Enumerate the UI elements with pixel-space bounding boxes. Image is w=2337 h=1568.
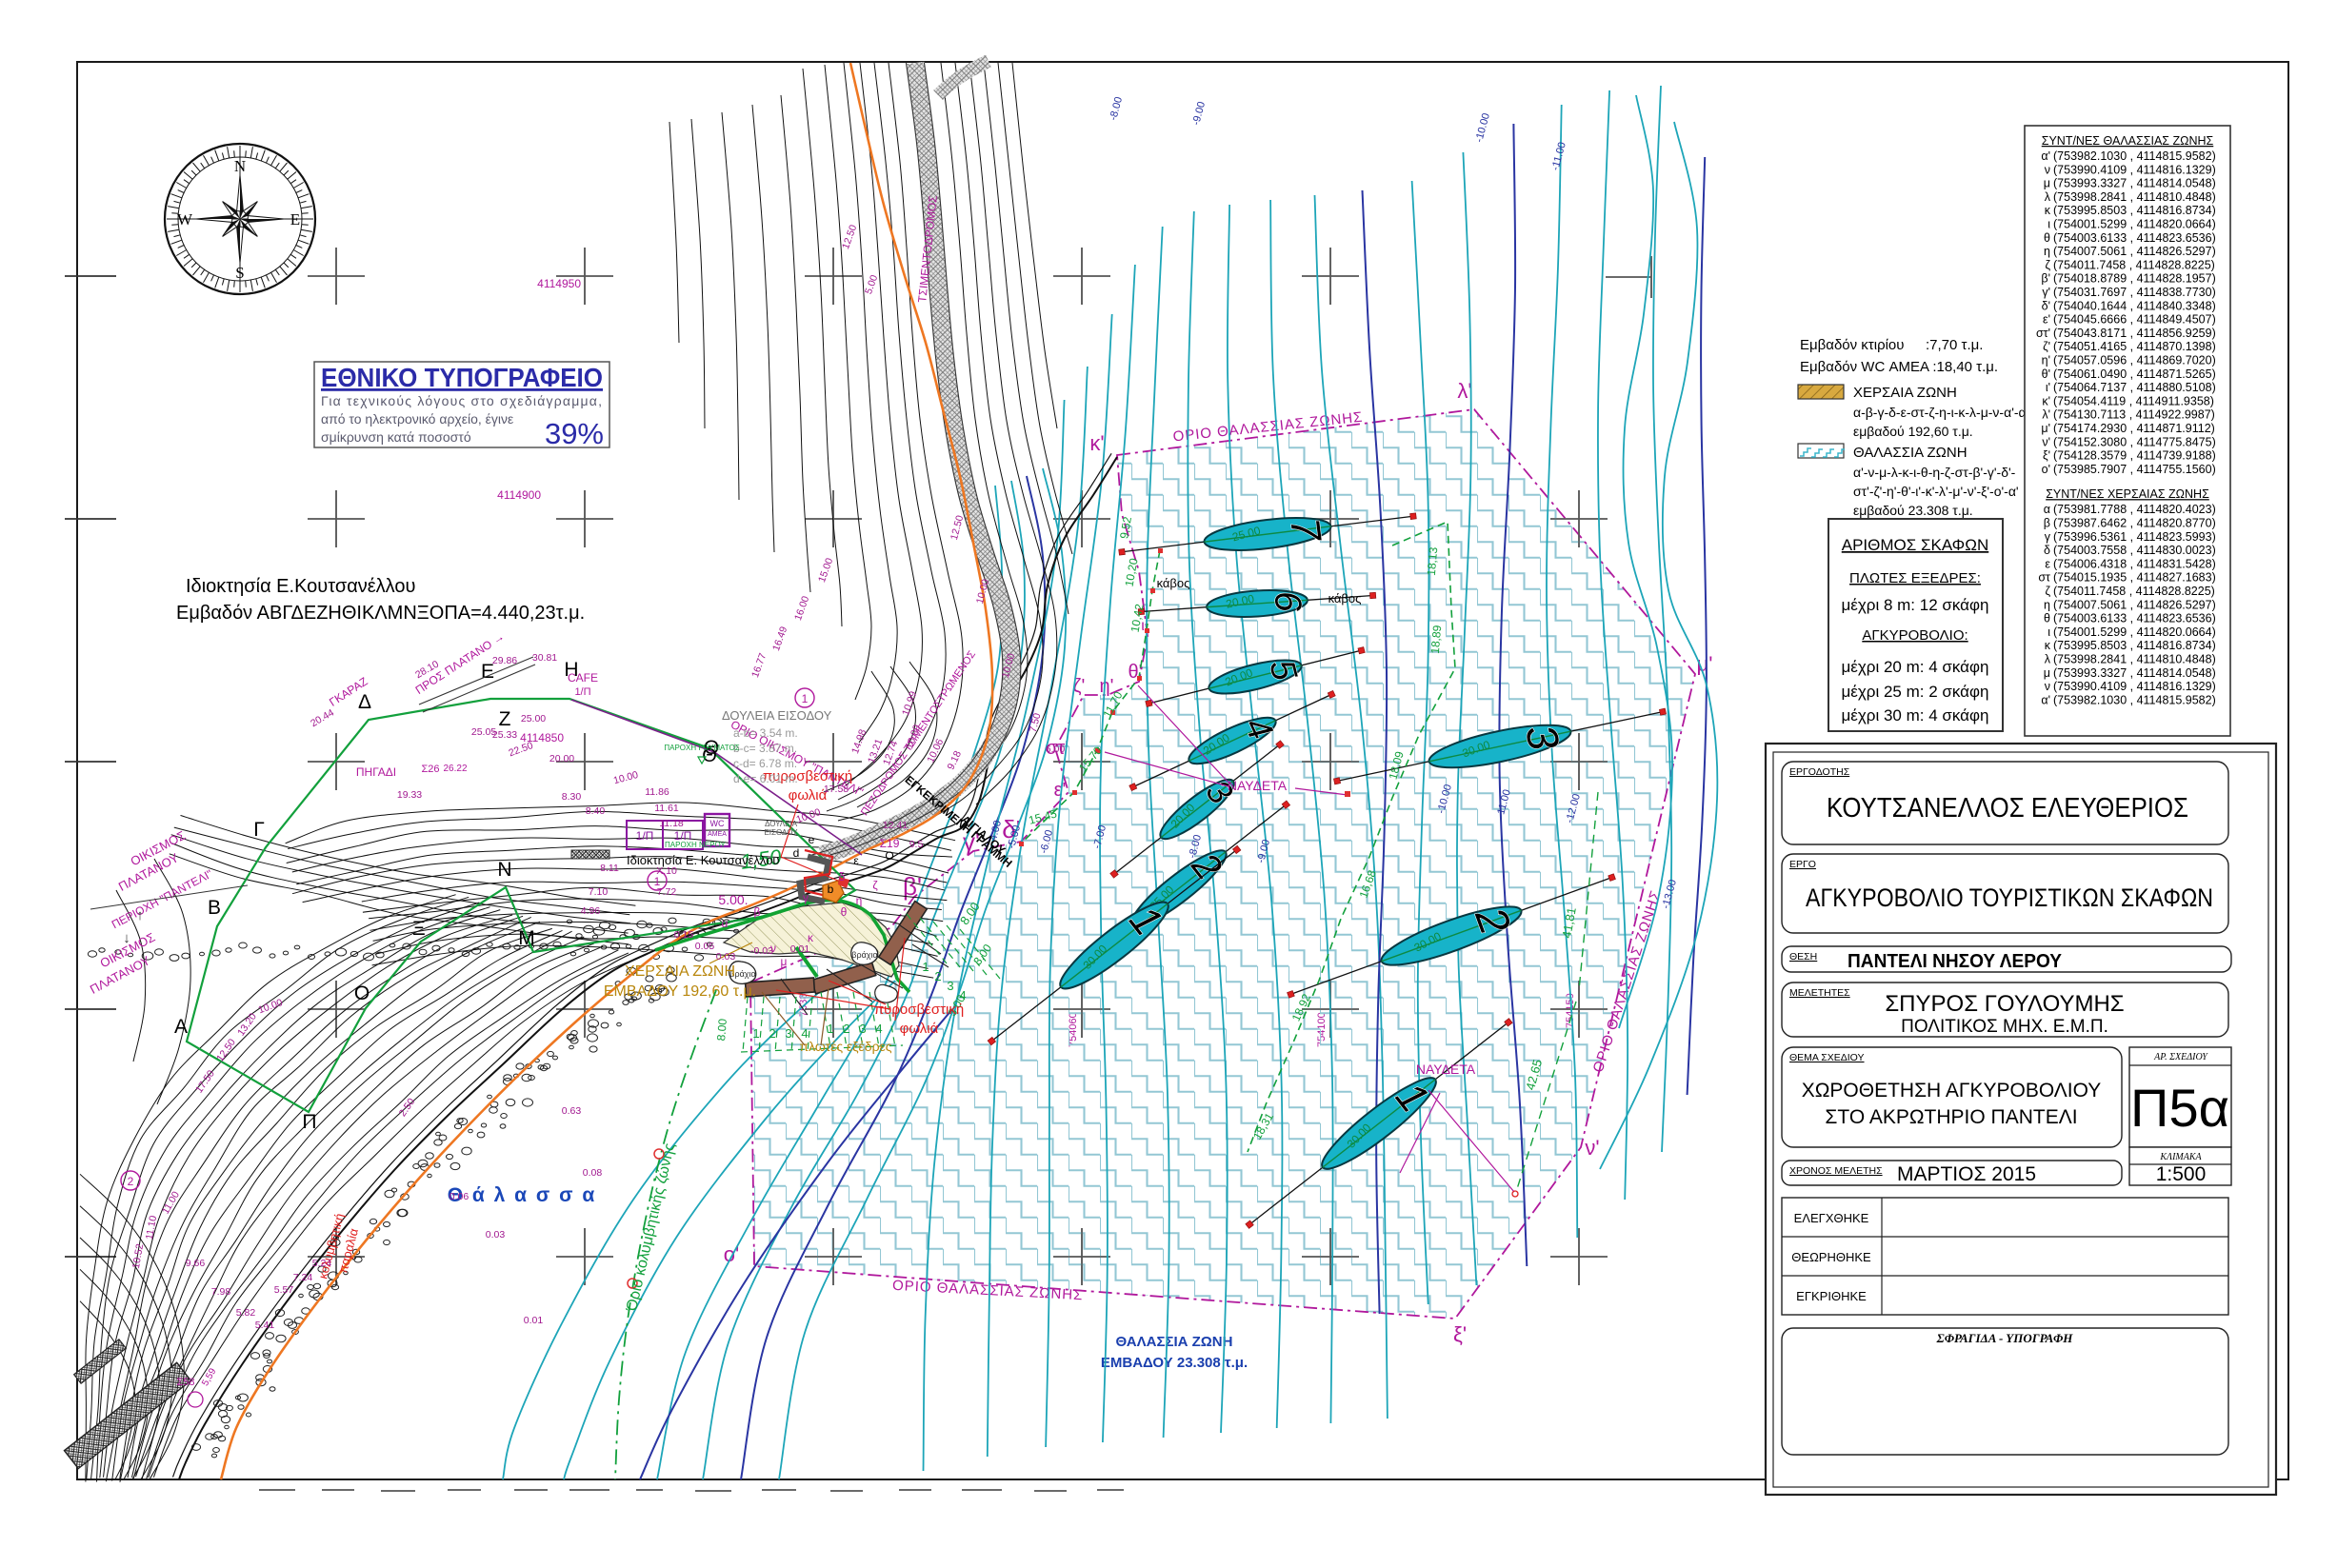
svg-text:b: b	[828, 883, 834, 896]
svg-text:7.24: 7.24	[293, 1272, 313, 1283]
svg-text:α: α	[2044, 503, 2050, 516]
svg-text:e: e	[809, 833, 815, 846]
svg-text:ΠΗΓΑΔΙ: ΠΗΓΑΔΙ	[356, 765, 396, 779]
svg-text:μ': μ'	[2041, 422, 2050, 435]
svg-text:ν': ν'	[1585, 1136, 1599, 1160]
svg-text:E: E	[290, 210, 300, 228]
svg-text:ξ': ξ'	[2043, 449, 2050, 463]
svg-text:8.40: 8.40	[586, 805, 606, 817]
svg-text:ι: ι	[2047, 625, 2050, 639]
svg-text:39%: 39%	[545, 417, 604, 450]
svg-text:c-d= 6.78 m.: c-d= 6.78 m.	[733, 757, 797, 770]
svg-text:β': β'	[2041, 272, 2050, 286]
svg-text:ΔΟΥΛΕΙΑ: ΔΟΥΛΕΙΑ	[765, 820, 798, 828]
svg-text:μ: μ	[781, 955, 788, 968]
svg-text:Εμβαδόν ΑΒΓΔΕΖΗΘΙΚΛΜΝΞΟΠΑ=4.44: Εμβαδόν ΑΒΓΔΕΖΗΘΙΚΛΜΝΞΟΠΑ=4.440,23τ.μ.	[176, 603, 585, 624]
svg-text:ΕΘΝΙΚΟ ΤΥΠΟΓΡΑΦΕΙΟ: ΕΘΝΙΚΟ ΤΥΠΟΓΡΑΦΕΙΟ	[321, 363, 603, 392]
svg-text:ΧΡΟΝΟΣ ΜΕΛΕΤΗΣ: ΧΡΟΝΟΣ ΜΕΛΕΤΗΣ	[1789, 1165, 1883, 1177]
svg-text:δ: δ	[2044, 544, 2050, 557]
svg-text:8.11: 8.11	[600, 863, 619, 874]
svg-text:ν': ν'	[2042, 435, 2050, 448]
svg-text:γ: γ	[803, 891, 809, 904]
svg-text:0.05: 0.05	[695, 941, 715, 952]
svg-text:ΧΕΡΣΑΙΑ ΖΩΝΗ: ΧΕΡΣΑΙΑ ΖΩΝΗ	[1853, 385, 1957, 401]
svg-text:(754128.3579 , 4114739.9188): (754128.3579 , 4114739.9188)	[2053, 449, 2216, 463]
svg-text:(753995.8503 , 4114816.8734): (753995.8503 , 4114816.8734)	[2053, 639, 2216, 652]
svg-text:30.81: 30.81	[532, 652, 557, 664]
svg-text:γ: γ	[2045, 530, 2051, 544]
svg-text:ι': ι'	[2046, 381, 2050, 394]
svg-text::7,70 τ.μ.: :7,70 τ.μ.	[1926, 337, 1983, 353]
svg-text:ΕΛΕΓΧΘΗΚΕ: ΕΛΕΓΧΘΗΚΕ	[1794, 1211, 1869, 1225]
svg-text:ΜΕΛΕΤΗΤΕΣ: ΜΕΛΕΤΗΤΕΣ	[1789, 987, 1850, 999]
svg-text:1: 1	[922, 960, 929, 974]
svg-text:26.22: 26.22	[443, 764, 467, 774]
svg-text:κ: κ	[808, 931, 814, 944]
svg-text:ΔΟΥΛΕΙΑ ΕΙΣΟΔΟΥ: ΔΟΥΛΕΙΑ ΕΙΣΟΔΟΥ	[722, 708, 832, 723]
svg-text:ΠΑΝΤΕΛΙ ΝΗΣΟΥ ΛΕΡΟΥ: ΠΑΝΤΕΛΙ ΝΗΣΟΥ ΛΕΡΟΥ	[1848, 951, 2063, 972]
svg-text:ΘΑΛΑΣΣΙΑ ΖΩΝΗ: ΘΑΛΑΣΣΙΑ ΖΩΝΗ	[1853, 445, 1967, 461]
svg-text:1: 1	[752, 1026, 759, 1041]
svg-text:12.41: 12.41	[883, 820, 908, 831]
svg-text:(754011.7458 , 4114828.8225): (754011.7458 , 4114828.8225)	[2053, 585, 2215, 598]
svg-text:φωλιά: φωλιά	[900, 1021, 939, 1037]
svg-text:Σ26: Σ26	[421, 764, 439, 775]
svg-text:Ζ: Ζ	[499, 708, 511, 730]
svg-text:25.00: 25.00	[521, 713, 546, 724]
svg-text:0.06: 0.06	[449, 1191, 469, 1202]
svg-text:ι: ι	[2047, 218, 2050, 231]
svg-text:θ: θ	[2044, 231, 2050, 245]
svg-text:μ: μ	[2044, 177, 2050, 190]
svg-text:(753993.3327 , 4114814.0548): (753993.3327 , 4114814.0548)	[2053, 177, 2216, 190]
svg-text:γ': γ'	[2042, 286, 2050, 299]
svg-text:μέχρι 30 m: 4 σκάφη: μέχρι 30 m: 4 σκάφη	[1842, 706, 1989, 724]
svg-text:6.00: 6.00	[1046, 744, 1066, 755]
svg-text:2: 2	[843, 1022, 849, 1036]
svg-text:εμβαδού 23.308 τ.μ.: εμβαδού 23.308 τ.μ.	[1853, 503, 1973, 518]
svg-text:βράχια: βράχια	[851, 950, 877, 960]
svg-text:(754057.0596 , 4114869.7020): (754057.0596 , 4114869.7020)	[2053, 354, 2216, 367]
svg-text:(753998.2841 , 4114810.4848): (753998.2841 , 4114810.4848)	[2053, 653, 2216, 666]
svg-text:Εμβαδόν WC ΑΜΕΑ :18,40 τ.μ.: Εμβαδόν WC ΑΜΕΑ :18,40 τ.μ.	[1800, 359, 1998, 375]
svg-text:CAFE: CAFE	[568, 671, 598, 685]
svg-text:λ: λ	[2045, 190, 2051, 204]
svg-text:μέχρι 20 m: 4 σκάφη: μέχρι 20 m: 4 σκάφη	[1842, 658, 1989, 676]
svg-text:ΣΦΡΑΓΙΔΑ - ΥΠΟΓΡΑΦΗ: ΣΦΡΑΓΙΔΑ - ΥΠΟΓΡΑΦΗ	[1936, 1331, 2074, 1345]
svg-text:μέχρι 25 m: 2 σκάφη: μέχρι 25 m: 2 σκάφη	[1842, 683, 1989, 701]
svg-text:κ': κ'	[2042, 394, 2050, 407]
svg-text:(754001.5299 , 4114820.0664): (754001.5299 , 4114820.0664)	[2053, 218, 2216, 231]
svg-text:ΣΤΟ ΑΚΡΩΤΗΡΙΟ ΠΑΝΤΕΛΙ: ΣΤΟ ΑΚΡΩΤΗΡΙΟ ΠΑΝΤΕΛΙ	[1825, 1106, 2077, 1128]
svg-text:ΑΡΙΘΜΟΣ ΣΚΑΦΩΝ: ΑΡΙΘΜΟΣ ΣΚΑΦΩΝ	[1842, 536, 1989, 554]
svg-text:στ'-ζ'-η'-θ'-ι'-κ'-λ'-μ'-ν'-ξ': στ'-ζ'-η'-θ'-ι'-κ'-λ'-μ'-ν'-ξ'-ο'-α'	[1853, 484, 2019, 499]
svg-text:Α: Α	[174, 1016, 188, 1038]
svg-text:(754045.6666 , 4114849.4507): (754045.6666 , 4114849.4507)	[2053, 313, 2216, 327]
svg-text:b-c= 3.87 m.: b-c= 3.87 m.	[733, 742, 797, 755]
svg-text:ΕΡΓΟΔΟΤΗΣ: ΕΡΓΟΔΟΤΗΣ	[1789, 766, 1850, 778]
svg-text:α: α	[722, 917, 729, 930]
svg-text:0.15: 0.15	[674, 929, 694, 941]
svg-text:-0.03: -0.03	[750, 945, 773, 957]
svg-text:λ': λ'	[1457, 379, 1471, 403]
svg-text:θ': θ'	[2042, 367, 2050, 381]
svg-text:ο': ο'	[2042, 463, 2050, 476]
svg-text:στ: στ	[2038, 571, 2050, 585]
svg-text:5.00.: 5.00.	[718, 892, 748, 907]
svg-text:ΣΥΝΤ/ΝΕΣ ΘΑΛΑΣΣΙΑΣ ΖΩΝΗΣ: ΣΥΝΤ/ΝΕΣ ΘΑΛΑΣΣΙΑΣ ΖΩΝΗΣ	[2042, 134, 2214, 148]
svg-text:(753995.8503 , 4114816.8734): (753995.8503 , 4114816.8734)	[2053, 204, 2216, 217]
svg-text:ΜΑΡΤΙΟΣ 2015: ΜΑΡΤΙΟΣ 2015	[1897, 1163, 2036, 1185]
svg-text:Δ: Δ	[358, 691, 371, 713]
svg-text:(753990.4109 , 4114816.1329): (753990.4109 , 4114816.1329)	[2053, 680, 2216, 693]
svg-text:ΝΑΥΔΕΤΑ: ΝΑΥΔΕΤΑ	[1416, 1062, 1476, 1077]
svg-text:(753993.3327 , 4114814.0548): (753993.3327 , 4114814.0548)	[2053, 666, 2216, 680]
svg-text:29.86: 29.86	[492, 655, 517, 666]
svg-text:2: 2	[769, 1026, 775, 1041]
svg-text:4114950: 4114950	[537, 277, 581, 290]
svg-text:Θ ά λ α σ σ α: Θ ά λ α σ σ α	[448, 1184, 596, 1206]
svg-text:ΚΟΥΤΣΑΝΕΛΛΟΣ ΕΛΕΥΘΕΡΙΟΣ: ΚΟΥΤΣΑΝΕΛΛΟΣ ΕΛΕΥΘΕΡΙΟΣ	[1827, 793, 2188, 824]
svg-text:θ: θ	[841, 905, 848, 919]
svg-text:(754040.1644 , 4114840.3348): (754040.1644 , 4114840.3348)	[2053, 299, 2216, 312]
svg-text:λ': λ'	[2042, 408, 2050, 422]
svg-text:α': α'	[2041, 149, 2050, 163]
svg-text:8.30: 8.30	[562, 791, 582, 803]
svg-text:η: η	[2044, 245, 2050, 258]
svg-text:ΝΑΥΔΕΤΑ: ΝΑΥΔΕΤΑ	[1228, 778, 1288, 793]
svg-text:(754130.7113 , 4114922.9987): (754130.7113 , 4114922.9987)	[2053, 408, 2215, 422]
svg-text:(753982.1030 , 4114815.9582): (753982.1030 , 4114815.9582)	[2053, 149, 2216, 163]
svg-text:(754018.8789 , 4114828.1957): (754018.8789 , 4114828.1957)	[2053, 272, 2216, 286]
svg-text:(754011.7458 , 4114828.8225): (754011.7458 , 4114828.8225)	[2053, 258, 2215, 271]
svg-text:ΣΥΝΤ/ΝΕΣ ΧΕΡΣΑΙΑΣ ΖΩΝΗΣ: ΣΥΝΤ/ΝΕΣ ΧΕΡΣΑΙΑΣ ΖΩΝΗΣ	[2046, 487, 2209, 501]
svg-text:β: β	[754, 905, 761, 919]
svg-text:4114900: 4114900	[497, 488, 541, 502]
svg-text:(754152.3080 , 4114775.8475): (754152.3080 , 4114775.8475)	[2053, 435, 2216, 448]
svg-text:Ιδιοκτησία Ε. Κουτσανέλλου: Ιδιοκτησία Ε. Κουτσανέλλου	[627, 853, 780, 867]
svg-text:(754006.4318 , 4114831.5428): (754006.4318 , 4114831.5428)	[2053, 557, 2216, 570]
svg-text:(754003.6133 , 4114823.6536): (754003.6133 , 4114823.6536)	[2053, 612, 2216, 625]
svg-text:(754174.2930 , 4114871.9112): (754174.2930 , 4114871.9112)	[2053, 422, 2215, 435]
svg-text:d-e= 6.01 m.: d-e= 6.01 m.	[733, 772, 798, 785]
svg-text:S: S	[235, 264, 244, 282]
svg-text:(753987.6462 , 4114820.8770): (753987.6462 , 4114820.8770)	[2053, 517, 2216, 530]
svg-text:20.00: 20.00	[549, 753, 574, 764]
svg-text:από το ηλεκτρονικό αρχείο, έγι: από το ηλεκτρονικό αρχείο, έγινε	[321, 411, 513, 427]
svg-text:3: 3	[947, 979, 953, 993]
svg-text:ΕΡΓΟ: ΕΡΓΟ	[1789, 859, 1816, 870]
svg-text:η: η	[2044, 598, 2050, 611]
svg-text:α'-ν-μ-λ-κ-ι-θ-η-ζ-στ-β'-γ'-δ': α'-ν-μ-λ-κ-ι-θ-η-ζ-στ-β'-γ'-δ'-	[1853, 465, 2016, 480]
svg-text:(754031.7697 , 4114838.7730): (754031.7697 , 4114838.7730)	[2053, 286, 2216, 299]
svg-text:9.5: 9.5	[909, 839, 924, 850]
svg-text:ζ: ζ	[872, 879, 878, 892]
svg-text:ε': ε'	[2043, 313, 2050, 327]
svg-text:X.10: X.10	[656, 865, 677, 877]
svg-text:κ: κ	[2045, 639, 2051, 652]
svg-text:πυροσβεστική: πυροσβεστική	[874, 1002, 964, 1018]
svg-text:Ν: Ν	[497, 859, 511, 881]
svg-text:α-β-γ-δ-ε-στ-ζ-η-ι-κ-λ-μ-ν-α'-: α-β-γ-δ-ε-στ-ζ-η-ι-κ-λ-μ-ν-α'-α	[1853, 405, 2027, 420]
svg-text:11.86: 11.86	[645, 786, 669, 798]
svg-text:Ο: Ο	[354, 982, 370, 1004]
svg-text:Γ: Γ	[253, 819, 265, 841]
svg-text:ΧΩΡΟΘΕΤΗΣΗ ΑΓΚΥΡΟΒΟΛΙΟΥ: ΧΩΡΟΘΕΤΗΣΗ ΑΓΚΥΡΟΒΟΛΙΟΥ	[1802, 1080, 2102, 1102]
svg-text:β: β	[2044, 517, 2050, 530]
svg-text:ε: ε	[2045, 557, 2050, 570]
svg-text:ν: ν	[2045, 163, 2050, 176]
svg-text:ΣΠΥΡΟΣ ΓΟΥΛΟΥΜΗΣ: ΣΠΥΡΟΣ ΓΟΥΛΟΥΜΗΣ	[1885, 991, 2124, 1017]
svg-text:7.72: 7.72	[657, 886, 677, 898]
svg-text:Π: Π	[302, 1111, 316, 1133]
svg-text:στ': στ'	[2036, 327, 2050, 340]
svg-text:Π5α: Π5α	[2130, 1078, 2229, 1138]
svg-text:0.01: 0.01	[790, 943, 810, 955]
svg-text:(754001.5299 , 4114820.0664): (754001.5299 , 4114820.0664)	[2053, 625, 2216, 639]
svg-text:πλωτές εξέδρες: πλωτές εξέδρες	[799, 1039, 891, 1054]
svg-text:Ο: Ο	[885, 849, 893, 863]
svg-text:11.18: 11.18	[659, 818, 684, 829]
svg-text:(754007.5061 , 4114826.5297): (754007.5061 , 4114826.5297)	[2053, 245, 2216, 258]
svg-text:0.01: 0.01	[524, 1315, 544, 1326]
svg-text:ΠΑΡΟΧΗ ΝΕΡΟΥ: ΠΑΡΟΧΗ ΝΕΡΟΥ	[665, 841, 726, 849]
svg-text:5.24: 5.24	[312, 1258, 332, 1269]
svg-text:(753981.7788 , 4114820.4023): (753981.7788 , 4114820.4023)	[2053, 503, 2216, 516]
svg-text:4: 4	[875, 1022, 882, 1036]
svg-text:7.10: 7.10	[589, 886, 609, 898]
svg-text:(753982.1030 , 4114815.9582): (753982.1030 , 4114815.9582)	[2053, 693, 2216, 706]
svg-text:0.63: 0.63	[562, 1105, 582, 1117]
svg-text:ΕΙΣΟΔΟΥ: ΕΙΣΟΔΟΥ	[764, 828, 798, 837]
svg-text:1:500: 1:500	[2156, 1163, 2207, 1185]
svg-text:0.03: 0.03	[486, 1229, 506, 1241]
svg-text:5.82: 5.82	[236, 1307, 256, 1319]
svg-text:Σ19: Σ19	[880, 837, 900, 850]
svg-text:6: 6	[1267, 589, 1308, 613]
svg-text:ΕΓΚΡΙΘΗΚΕ: ΕΓΚΡΙΘΗΚΕ	[1796, 1289, 1867, 1303]
svg-text:ΘΕΣΗ: ΘΕΣΗ	[1789, 951, 1817, 963]
svg-text:ΑΓΚΥΡΟΒΟΛΙΟ:: ΑΓΚΥΡΟΒΟΛΙΟ:	[1862, 627, 1967, 644]
svg-text:ΠΟΛΙΤΙΚΟΣ ΜΗΧ. Ε.Μ.Π.: ΠΟΛΙΤΙΚΟΣ ΜΗΧ. Ε.Μ.Π.	[1901, 1017, 2108, 1037]
svg-text:1/Π: 1/Π	[574, 686, 590, 698]
svg-text:N: N	[234, 157, 246, 175]
svg-text:ΘΕΜΑ ΣΧΕΔΙΟΥ: ΘΕΜΑ ΣΧΕΔΙΟΥ	[1789, 1052, 1865, 1063]
svg-text:(754061.0490 , 4114871.5265): (754061.0490 , 4114871.5265)	[2053, 367, 2216, 381]
svg-text:d: d	[793, 846, 800, 860]
svg-text:δ: δ	[839, 870, 846, 883]
svg-text:ΧΕΡΣΑΙΑ ΖΩΝΗ: ΧΕΡΣΑΙΑ ΖΩΝΗ	[625, 963, 735, 980]
svg-text:φωλιά: φωλιά	[789, 787, 828, 804]
svg-text:5.57: 5.57	[274, 1284, 294, 1296]
svg-text:σμίκρυνση κατά ποσοστό: σμίκρυνση κατά ποσοστό	[321, 429, 471, 445]
svg-text:↓: ↓	[123, 930, 130, 946]
svg-text:Εμβαδόν κτιρίου: Εμβαδόν κτιρίου	[1800, 337, 1904, 353]
svg-text:8.00: 8.00	[714, 1018, 729, 1042]
svg-text:ΕΜΒΑΔΟΥ 23.308 τ.μ.: ΕΜΒΑΔΟΥ 23.308 τ.μ.	[1101, 1355, 1248, 1371]
svg-text:ΘΕΩΡΗΘΗΚΕ: ΘΕΩΡΗΘΗΚΕ	[1791, 1250, 1871, 1264]
svg-text:α': α'	[2041, 693, 2050, 706]
svg-text:19.33: 19.33	[397, 789, 422, 801]
svg-text:ΠΛΩΤΕΣ ΕΞΕΔΡΕΣ:: ΠΛΩΤΕΣ ΕΞΕΔΡΕΣ:	[1849, 570, 1981, 586]
svg-text:9.66: 9.66	[186, 1258, 206, 1269]
svg-text:ζ: ζ	[2045, 258, 2050, 271]
svg-text:κ': κ'	[1089, 431, 1104, 455]
svg-text:ΑΡ. ΣΧΕΔΙΟΥ: ΑΡ. ΣΧΕΔΙΟΥ	[2153, 1052, 2208, 1062]
svg-text:ΠΑΡΟΧΗ ΡΕΥΜΑΤΟΣ: ΠΑΡΟΧΗ ΡΕΥΜΑΤΟΣ	[664, 744, 739, 752]
svg-text:1: 1	[802, 692, 809, 705]
svg-text:18,13: 18,13	[1425, 546, 1441, 576]
svg-text:ζ': ζ'	[2043, 340, 2050, 353]
svg-text:ΕΜΒΑΔΟΥ 192,60 τ.μ.: ΕΜΒΑΔΟΥ 192,60 τ.μ.	[604, 983, 756, 1000]
svg-text:μ: μ	[2044, 666, 2050, 680]
svg-text:ε: ε	[853, 854, 859, 867]
svg-text:a-b= 3.54 m.: a-b= 3.54 m.	[733, 726, 798, 740]
svg-text:Σ58: Σ58	[176, 1377, 194, 1388]
svg-text:0.08: 0.08	[583, 1167, 603, 1179]
svg-text:WC: WC	[710, 819, 725, 828]
svg-text:Β: Β	[208, 897, 221, 919]
svg-text:11.61: 11.61	[654, 803, 679, 814]
svg-text:ΘΑΛΑΣΣΙΑ ΖΩΝΗ: ΘΑΛΑΣΣΙΑ ΖΩΝΗ	[1116, 1334, 1233, 1350]
svg-text:Για τεχνικούς λόγους στο σχεδι: Για τεχνικούς λόγους στο σχεδιάγραμμα,	[321, 393, 602, 408]
svg-text:↑: ↑	[136, 907, 144, 923]
svg-text:μέχρι 8 m: 12 σκάφη: μέχρι 8 m: 12 σκάφη	[1842, 596, 1989, 614]
svg-text:3: 3	[859, 1022, 866, 1036]
svg-text:18,89: 18,89	[1428, 625, 1445, 654]
svg-text:ΚΛΙΜΑΚΑ: ΚΛΙΜΑΚΑ	[2159, 1152, 2202, 1162]
svg-text:(754064.7137 , 4114880.5108): (754064.7137 , 4114880.5108)	[2053, 381, 2216, 394]
svg-text:4.96: 4.96	[581, 905, 601, 917]
svg-text:δ': δ'	[2042, 299, 2050, 312]
svg-text:17.58: 17.58	[824, 784, 849, 795]
svg-text:Ιδιοκτησία Ε.Κουτσανέλλου: Ιδιοκτησία Ε.Κουτσανέλλου	[186, 576, 415, 597]
svg-text:Ξ: Ξ	[412, 918, 426, 940]
svg-text:1/Π: 1/Π	[636, 829, 654, 843]
svg-text:ζ: ζ	[2045, 585, 2050, 598]
svg-text:λ: λ	[2045, 653, 2051, 666]
svg-text:ν: ν	[2045, 680, 2050, 693]
svg-text:1: 1	[827, 1022, 833, 1036]
svg-text:(753998.2841 , 4114810.4848): (753998.2841 , 4114810.4848)	[2053, 190, 2216, 204]
svg-text:7.98: 7.98	[211, 1286, 231, 1298]
svg-text:κάβος: κάβος	[1328, 591, 1362, 605]
svg-text:κ: κ	[2045, 204, 2051, 217]
svg-text:θ: θ	[2044, 612, 2050, 625]
svg-text:(754043.8171 , 4114856.9259): (754043.8171 , 4114856.9259)	[2053, 327, 2216, 340]
svg-text:(754007.5061 , 4114826.5297): (754007.5061 , 4114826.5297)	[2053, 598, 2216, 611]
svg-text:(753990.4109 , 4114816.1329): (753990.4109 , 4114816.1329)	[2053, 163, 2216, 176]
svg-text:η: η	[856, 894, 863, 907]
svg-text:(754054.4119 , 4114911.9358): (754054.4119 , 4114911.9358)	[2053, 394, 2214, 407]
svg-text:Μ: Μ	[518, 927, 535, 949]
svg-text:εμβαδού 192,60 τ.μ.: εμβαδού 192,60 τ.μ.	[1853, 424, 1973, 439]
svg-text:0.03: 0.03	[716, 951, 736, 963]
svg-text:25.05: 25.05	[471, 726, 496, 738]
svg-text:2: 2	[934, 969, 941, 983]
svg-text:η': η'	[2042, 354, 2050, 367]
svg-text:ΑΓΚΥΡΟΒΟΛΙΟ ΤΟΥΡΙΣΤΙΚΩΝ ΣΚΑΦΩΝ: ΑΓΚΥΡΟΒΟΛΙΟ ΤΟΥΡΙΣΤΙΚΩΝ ΣΚΑΦΩΝ	[1806, 883, 2213, 912]
svg-text:W: W	[177, 210, 193, 228]
svg-text:(753996.5361 , 4114823.5993): (753996.5361 , 4114823.5993)	[2053, 530, 2216, 544]
svg-text:(754003.7558 , 4114830.0023): (754003.7558 , 4114830.0023)	[2053, 544, 2216, 557]
svg-text:5.41: 5.41	[255, 1320, 275, 1331]
svg-text:(754051.4165 , 4114870.1398): (754051.4165 , 4114870.1398)	[2053, 340, 2216, 353]
svg-text:(754003.6133 , 4114823.6536): (754003.6133 , 4114823.6536)	[2053, 231, 2216, 245]
svg-text:(753985.7907 , 4114755.1560): (753985.7907 , 4114755.1560)	[2053, 463, 2216, 476]
svg-text:2: 2	[128, 1175, 134, 1188]
svg-text:ξ': ξ'	[1453, 1322, 1467, 1346]
svg-text:κάβος: κάβος	[1157, 576, 1190, 590]
svg-text:(754015.1935 , 4114827.1683): (754015.1935 , 4114827.1683)	[2053, 571, 2216, 585]
svg-text:ΑΜΕΑ: ΑΜΕΑ	[708, 831, 727, 838]
